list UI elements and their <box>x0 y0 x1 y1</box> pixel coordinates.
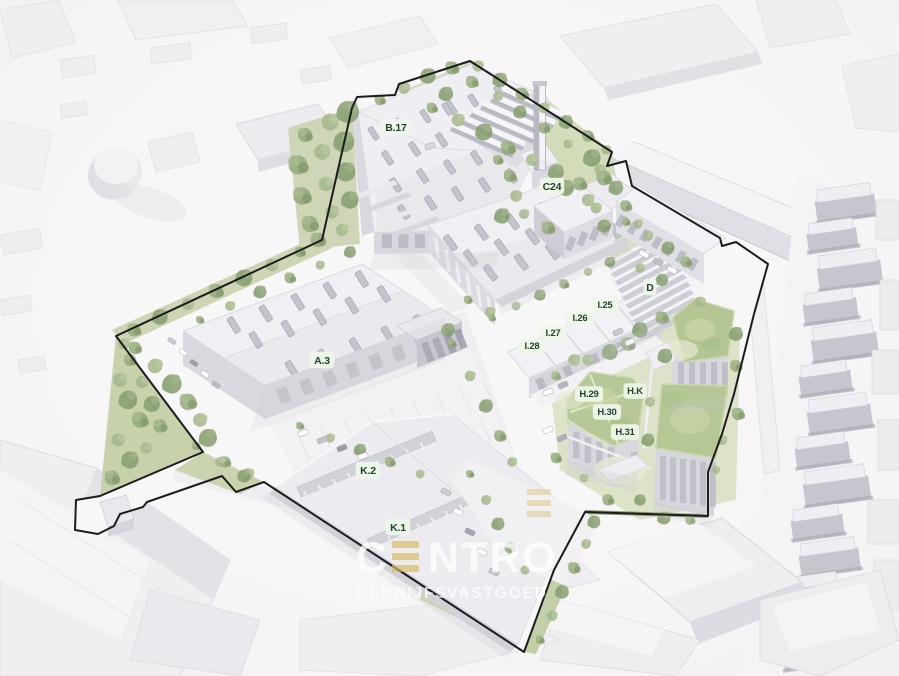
svg-text:A.3: A.3 <box>314 355 330 367</box>
svg-text:I.25: I.25 <box>597 300 613 311</box>
svg-text:H.K: H.K <box>627 386 643 397</box>
svg-text:C24: C24 <box>543 181 562 193</box>
svg-text:I.27: I.27 <box>545 328 560 339</box>
svg-text:C: C <box>356 534 387 582</box>
svg-text:K.2: K.2 <box>360 465 376 477</box>
svg-text:H.30: H.30 <box>597 407 616 418</box>
svg-text:I.28: I.28 <box>524 341 539 352</box>
svg-text:K.1: K.1 <box>390 522 406 534</box>
svg-text:H.31: H.31 <box>615 427 635 438</box>
svg-text:H.29: H.29 <box>579 389 598 400</box>
svg-text:BEDRIJFSVASTGOED: BEDRIJFSVASTGOED <box>356 585 547 602</box>
svg-text:D: D <box>646 282 654 294</box>
svg-text:NTRO: NTRO <box>428 534 558 582</box>
svg-text:B.17: B.17 <box>385 122 407 134</box>
svg-text:I.26: I.26 <box>572 313 587 324</box>
